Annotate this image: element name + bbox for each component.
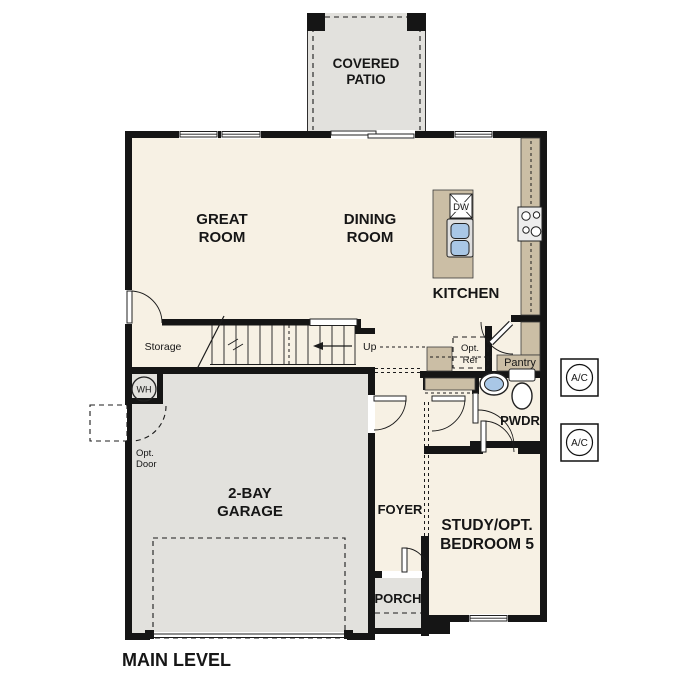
patio-post-right — [407, 13, 426, 31]
floor-plan: COVERED PATIO GREAT ROOM DINING ROOM KIT… — [0, 0, 687, 687]
kitchen-counter — [427, 347, 452, 371]
opt-ref-label: Opt. — [461, 343, 479, 354]
great-room-label: GREAT — [196, 211, 247, 228]
door-leaf — [374, 396, 406, 401]
porch-label: PORCH — [375, 591, 422, 606]
covered-patio-label: PATIO — [346, 72, 385, 87]
toilet-tank — [509, 369, 535, 381]
opt-door-label: Door — [136, 459, 157, 470]
foyer-label: FOYER — [378, 502, 423, 517]
pantry-label: Pantry — [504, 357, 536, 369]
great-room-label: ROOM — [199, 229, 246, 246]
garage-label: GARAGE — [217, 503, 283, 520]
kitchen-label: KITCHEN — [433, 285, 500, 302]
study-label: BEDROOM 5 — [440, 536, 534, 553]
opt-ref-label: Ref — [463, 355, 478, 366]
ac-unit-label: A/C — [571, 438, 588, 449]
dining-room-label: ROOM — [347, 229, 394, 246]
floor-plan-drawing: COVERED PATIO GREAT ROOM DINING ROOM KIT… — [0, 0, 687, 687]
door-leaf — [473, 393, 478, 423]
door-leaf — [432, 396, 465, 401]
plan-title: MAIN LEVEL — [122, 650, 231, 670]
dining-room-label: DINING — [344, 211, 397, 228]
powder-room-label: PWDR — [500, 413, 540, 428]
opt-door-label: Opt. — [136, 448, 154, 459]
door-leaf — [127, 291, 132, 323]
water-heater-label: WH — [137, 385, 152, 395]
storage-label: Storage — [145, 341, 182, 353]
front-door-leaf — [402, 548, 407, 572]
ac-unit-label: A/C — [571, 373, 588, 384]
covered-patio-label: COVERED — [333, 56, 400, 71]
hall-counter — [425, 378, 475, 390]
door-leaf — [481, 421, 486, 452]
toilet-bowl — [512, 383, 532, 409]
patio-post-left — [307, 13, 325, 31]
optional-door-landing — [90, 405, 127, 441]
stair-rail — [310, 319, 357, 326]
stair-wall — [162, 319, 310, 326]
stairs-up-label: Up — [363, 341, 377, 353]
garage-label: 2-BAY — [228, 485, 272, 502]
pantry-shelf — [521, 322, 540, 355]
main-floor-upper — [132, 138, 540, 374]
dishwasher-label: DW — [453, 202, 469, 213]
sliding-door-panel — [368, 134, 414, 138]
study-label: STUDY/OPT. — [441, 517, 532, 534]
